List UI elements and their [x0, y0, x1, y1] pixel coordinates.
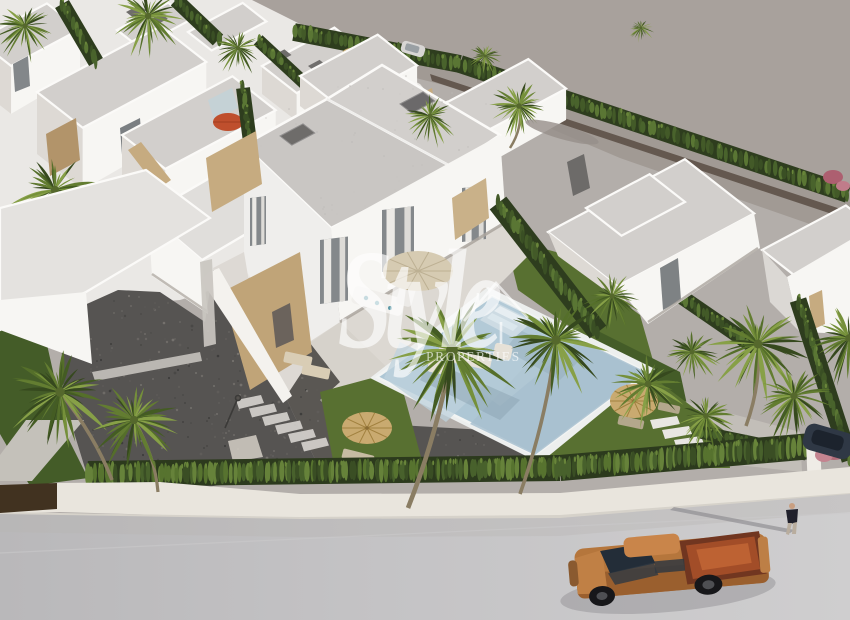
svg-text:PROPERTIES: PROPERTIES	[426, 349, 521, 364]
